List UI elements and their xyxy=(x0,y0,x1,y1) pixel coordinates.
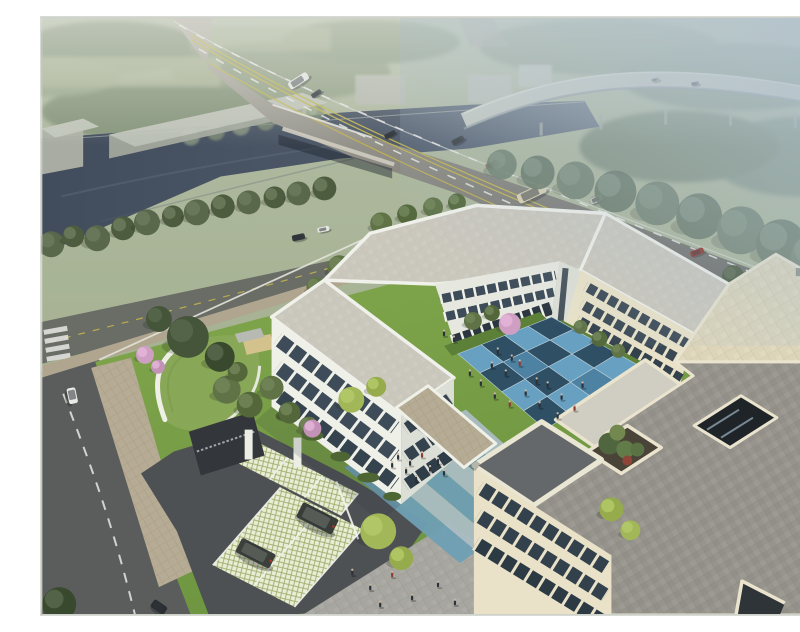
person-shadow xyxy=(351,575,356,577)
person-body xyxy=(511,356,513,361)
tree-highlight xyxy=(601,499,614,512)
person-shadow xyxy=(391,467,396,469)
right-fog xyxy=(400,17,800,346)
person-head xyxy=(469,369,471,371)
person-shadow xyxy=(409,466,414,468)
person-head xyxy=(560,393,562,395)
person-head xyxy=(421,451,423,453)
person-shadow xyxy=(421,458,426,460)
tree-highlight xyxy=(113,218,126,231)
person-head xyxy=(536,377,538,379)
person-head xyxy=(505,369,507,371)
tree-highlight xyxy=(391,548,404,561)
person-head xyxy=(437,457,439,459)
person-body xyxy=(539,403,541,408)
person-shadow xyxy=(491,368,496,370)
person-body xyxy=(494,394,496,399)
person-head xyxy=(391,571,393,573)
person-shadow xyxy=(369,590,374,592)
tree-highlight xyxy=(280,403,292,415)
person-body xyxy=(443,471,445,476)
tree-highlight xyxy=(86,227,100,241)
person-body xyxy=(405,469,407,474)
person-head xyxy=(351,569,353,571)
person-body xyxy=(369,585,371,590)
tree-highlight xyxy=(45,590,64,609)
tree-highlight xyxy=(64,227,76,239)
person-body xyxy=(409,461,411,466)
tree-highlight xyxy=(136,211,150,225)
tree-highlight xyxy=(261,378,274,391)
person-body xyxy=(581,383,583,388)
person-body xyxy=(536,379,538,384)
person-head xyxy=(557,412,559,414)
person-shadow xyxy=(519,366,524,368)
tree-highlight xyxy=(363,516,383,536)
tree-highlight xyxy=(368,378,379,389)
tree-highlight xyxy=(164,207,176,219)
person-body xyxy=(415,477,417,482)
person-shadow xyxy=(509,407,514,409)
person-head xyxy=(491,361,493,363)
person-head xyxy=(409,459,411,461)
person-shadow xyxy=(505,376,510,378)
tree-highlight xyxy=(152,361,160,369)
person-body xyxy=(391,463,393,468)
person-shadow xyxy=(547,388,552,390)
person-head xyxy=(539,401,541,403)
person-shadow xyxy=(581,388,586,390)
person-shadow xyxy=(379,607,384,609)
person-body xyxy=(351,571,353,576)
person-body xyxy=(391,573,393,578)
tree-highlight xyxy=(372,214,384,226)
person-head xyxy=(405,467,407,469)
person-body xyxy=(397,455,399,460)
tree-highlight xyxy=(314,178,327,191)
person-shadow xyxy=(437,464,442,466)
person-shadow xyxy=(480,386,485,388)
tree-highlight xyxy=(186,201,200,215)
gate-pillar-1 xyxy=(245,430,253,460)
person-shadow xyxy=(454,605,459,607)
person-body xyxy=(429,467,431,472)
tree-highlight xyxy=(170,319,193,342)
person-shadow xyxy=(573,411,578,413)
person-head xyxy=(494,392,496,394)
person-body xyxy=(547,383,549,388)
person-head xyxy=(497,347,499,349)
person-shadow xyxy=(469,376,474,378)
person-shadow xyxy=(557,419,562,421)
person-head xyxy=(379,601,381,603)
person-body xyxy=(497,349,499,354)
person-head xyxy=(411,594,413,596)
person-shadow xyxy=(415,481,420,483)
person-shadow xyxy=(497,354,502,356)
person-body xyxy=(469,371,471,376)
person-body xyxy=(519,361,521,366)
tree-highlight xyxy=(288,183,301,196)
person-head xyxy=(369,584,371,586)
person-shadow xyxy=(443,475,448,477)
person-head xyxy=(397,453,399,455)
person-head xyxy=(511,354,513,356)
person-body xyxy=(509,402,511,407)
person-head xyxy=(415,475,417,477)
tree-highlight xyxy=(215,378,230,393)
tree-highlight xyxy=(265,188,277,200)
tree-highlight xyxy=(137,347,147,357)
person-shadow xyxy=(539,408,544,410)
person-body xyxy=(573,406,575,411)
person-body xyxy=(505,371,507,376)
person-head xyxy=(509,400,511,402)
person-head xyxy=(480,379,482,381)
tree-highlight xyxy=(207,344,223,360)
tree-highlight xyxy=(305,421,315,431)
person-shadow xyxy=(437,587,442,589)
person-shadow xyxy=(511,361,516,363)
person-head xyxy=(437,581,439,583)
architectural-rendering xyxy=(40,16,800,616)
person-shadow xyxy=(560,400,565,402)
tree-highlight xyxy=(239,394,253,408)
tree-highlight xyxy=(622,522,633,533)
person-head xyxy=(581,381,583,383)
person-head xyxy=(429,465,431,467)
person-body xyxy=(480,381,482,386)
red-shrub xyxy=(622,456,632,466)
person-body xyxy=(437,459,439,464)
rendering-canvas xyxy=(41,17,800,615)
person-head xyxy=(573,404,575,406)
person-shadow xyxy=(536,384,541,386)
person-shadow xyxy=(429,471,434,473)
person-body xyxy=(437,583,439,588)
person-head xyxy=(391,461,393,463)
tree-highlight xyxy=(340,389,354,403)
person-shadow xyxy=(494,399,499,401)
person-body xyxy=(491,363,493,368)
person-shadow xyxy=(525,396,530,398)
tree-highlight xyxy=(612,345,620,353)
person-body xyxy=(421,453,423,458)
person-shadow xyxy=(391,577,396,579)
person-head xyxy=(547,381,549,383)
person-head xyxy=(525,389,527,391)
tree-highlight xyxy=(213,196,226,209)
tree-highlight xyxy=(148,308,162,322)
person-body xyxy=(525,391,527,396)
person-shadow xyxy=(411,600,416,602)
tree-highlight xyxy=(238,192,251,205)
person-body xyxy=(557,414,559,419)
person-body xyxy=(454,600,456,605)
person-shadow xyxy=(405,473,410,475)
person-head xyxy=(443,469,445,471)
person-body xyxy=(379,602,381,607)
person-shadow xyxy=(397,460,402,462)
person-head xyxy=(519,359,521,361)
person-body xyxy=(560,395,562,400)
